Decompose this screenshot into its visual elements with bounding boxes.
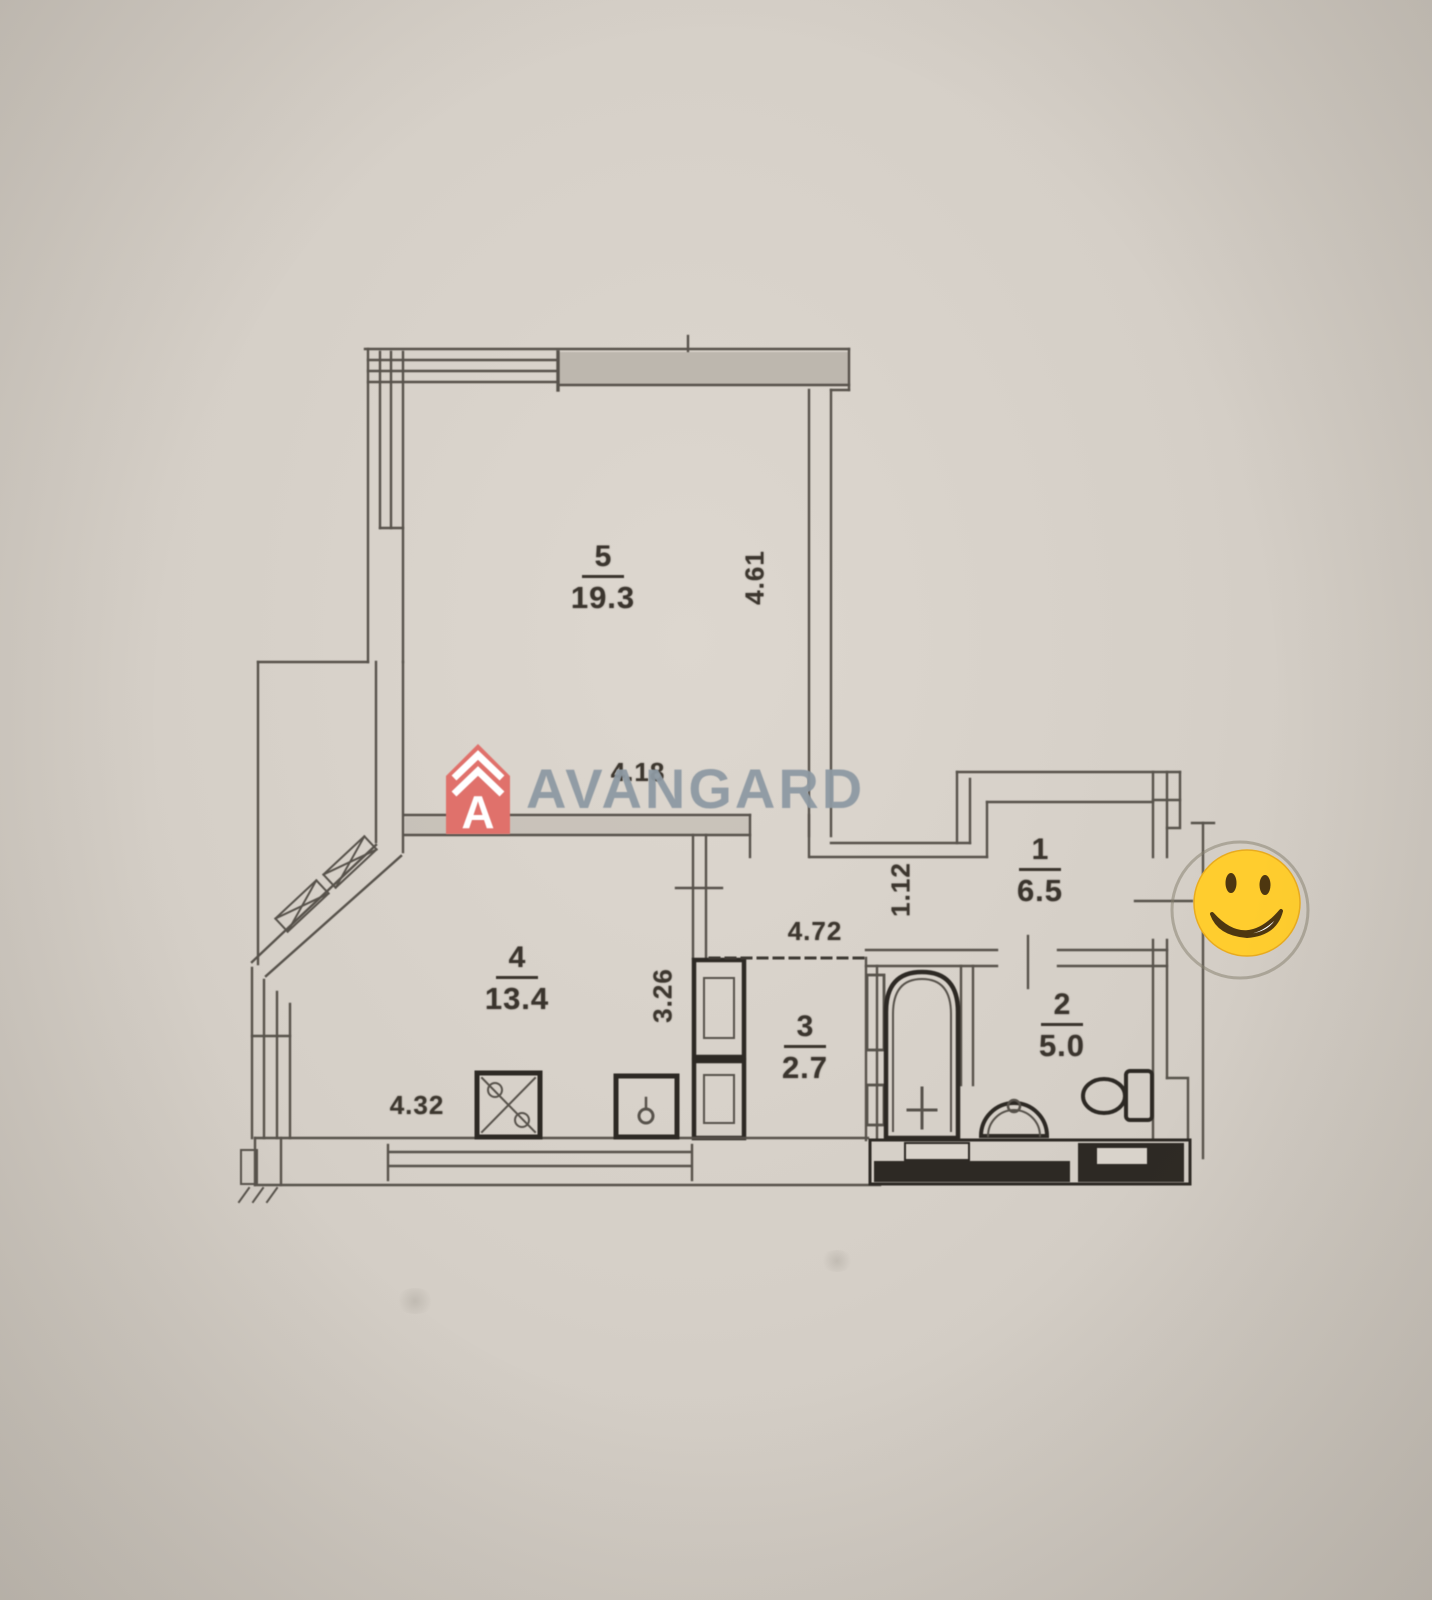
room-label-4: 4 13.4 (472, 942, 562, 1015)
room-label-2: 2 5.0 (1017, 989, 1107, 1062)
room-number: 4 (496, 942, 539, 979)
agency-watermark: A AVANGARD (446, 744, 865, 834)
room-number: 1 (1019, 834, 1062, 871)
smiley-face (1194, 850, 1300, 956)
scanned-floor-plan-photo: { "brand": { "name": "AVANGARD", "logo_l… (0, 0, 1432, 1600)
room-area: 13.4 (485, 982, 549, 1015)
room-label-1: 1 6.5 (995, 834, 1085, 907)
dimension-4-61: 4.61 (740, 533, 771, 623)
dimension-3-26: 3.26 (648, 951, 679, 1041)
brand-name: AVANGARD (526, 744, 865, 834)
logo-letter: A (461, 786, 494, 834)
room-label-3: 3 2.7 (760, 1011, 850, 1084)
room-number: 2 (1041, 989, 1084, 1026)
dimension-1-12: 1.12 (886, 845, 917, 935)
dimension-4-32: 4.32 (372, 1090, 462, 1121)
avangard-logo-icon: A (446, 744, 510, 834)
smiley-eye-left (1226, 873, 1237, 893)
dimension-4-72: 4.72 (770, 916, 860, 947)
room-number: 3 (784, 1011, 827, 1048)
room-area: 19.3 (571, 581, 635, 614)
room-number: 5 (582, 541, 625, 578)
smiley-eye-right (1260, 875, 1271, 895)
room-area: 6.5 (1017, 874, 1063, 907)
room-label-5: 5 19.3 (558, 541, 648, 614)
smiley-emoji-sticker (1166, 826, 1326, 991)
room-area: 5.0 (1039, 1029, 1085, 1062)
room-area: 2.7 (782, 1051, 828, 1084)
